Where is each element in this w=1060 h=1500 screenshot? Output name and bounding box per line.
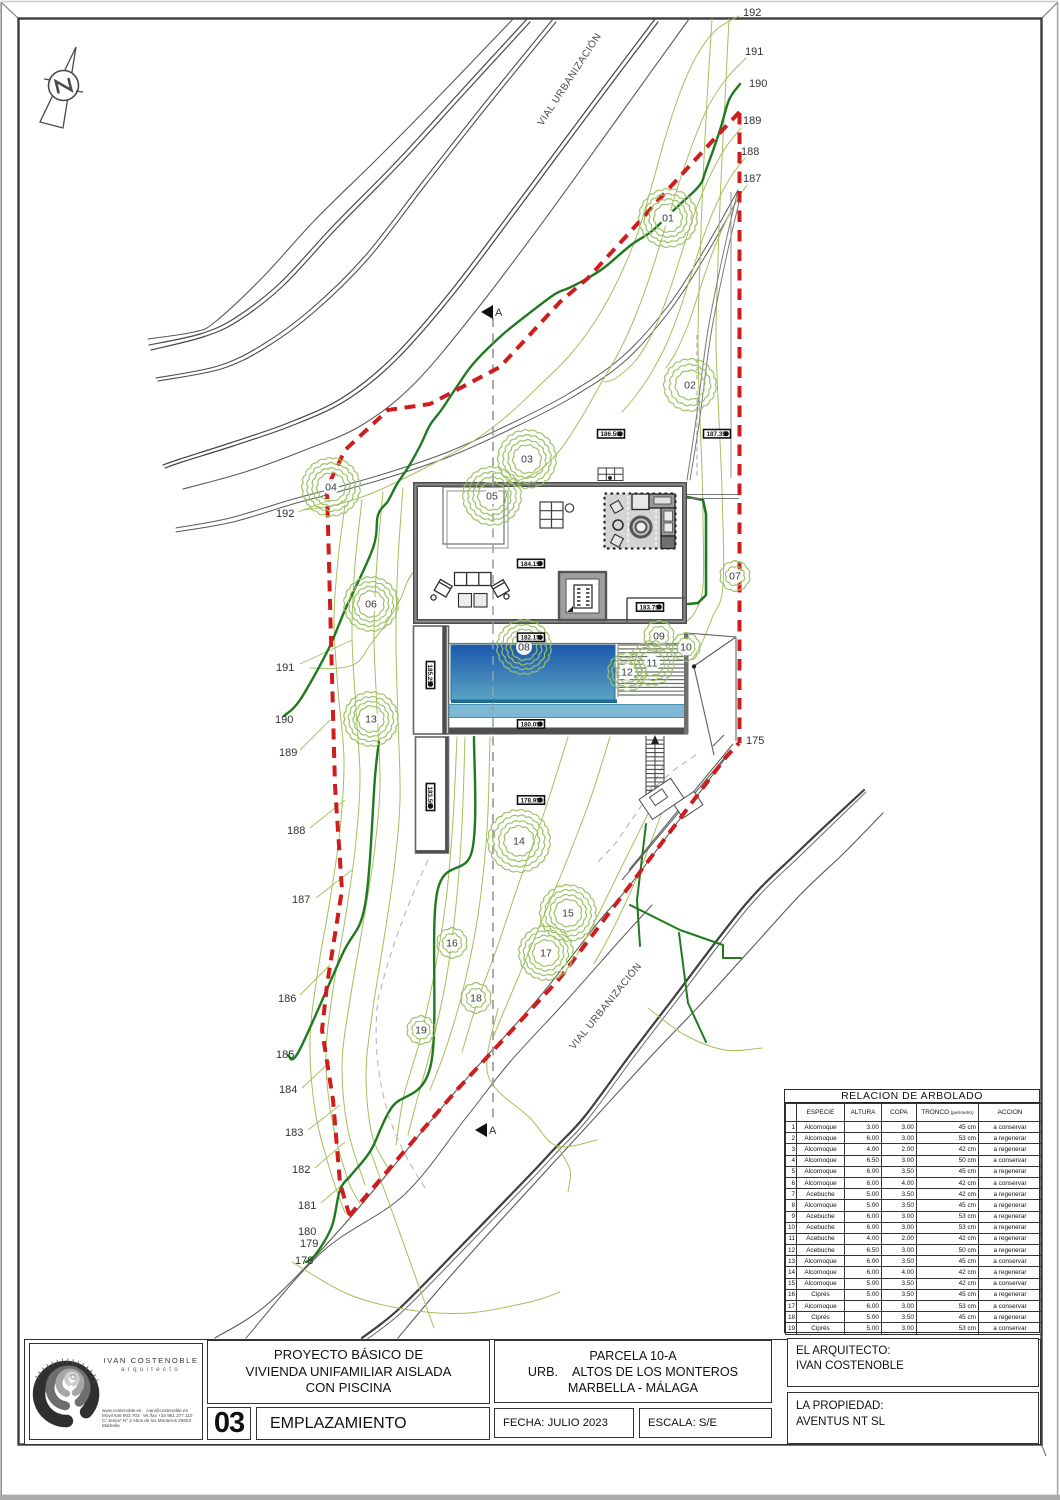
svg-text:191: 191 — [745, 46, 763, 58]
svg-text:13: 13 — [365, 714, 377, 726]
svg-text:05: 05 — [486, 491, 498, 503]
svg-text:192: 192 — [276, 508, 294, 520]
svg-text:15: 15 — [562, 908, 574, 920]
svg-text:08: 08 — [518, 642, 530, 654]
svg-text:14: 14 — [513, 836, 525, 848]
svg-text:178: 178 — [295, 1255, 313, 1267]
svg-text:19: 19 — [415, 1025, 427, 1037]
svg-text:02: 02 — [684, 380, 696, 392]
svg-text:18: 18 — [470, 993, 482, 1005]
svg-text:180: 180 — [298, 1226, 316, 1238]
svg-text:190: 190 — [275, 714, 293, 726]
svg-text:190: 190 — [749, 78, 767, 90]
svg-text:12: 12 — [621, 667, 633, 679]
svg-text:192: 192 — [743, 7, 761, 19]
svg-text:186.50: 186.50 — [601, 431, 621, 438]
svg-text:01: 01 — [662, 213, 674, 225]
svg-text:188: 188 — [287, 825, 305, 837]
svg-text:185.25: 185.25 — [426, 665, 433, 685]
svg-text:10: 10 — [680, 642, 692, 654]
svg-text:189: 189 — [743, 115, 761, 127]
svg-text:175: 175 — [746, 735, 764, 747]
svg-text:183: 183 — [285, 1127, 303, 1139]
svg-text:183.50: 183.50 — [426, 787, 433, 807]
svg-text:16: 16 — [446, 938, 458, 950]
svg-text:191: 191 — [276, 662, 294, 674]
svg-text:182.15: 182.15 — [521, 635, 541, 642]
svg-text:188: 188 — [741, 146, 759, 158]
svg-text:187: 187 — [292, 894, 310, 906]
svg-text:187: 187 — [743, 173, 761, 185]
svg-text:A: A — [489, 1125, 497, 1137]
svg-text:11: 11 — [647, 658, 658, 670]
svg-text:179: 179 — [300, 1238, 318, 1250]
svg-text:07: 07 — [729, 571, 741, 583]
svg-text:186: 186 — [278, 993, 296, 1005]
svg-text:182: 182 — [292, 1164, 310, 1176]
svg-text:181: 181 — [298, 1200, 316, 1212]
svg-text:185: 185 — [276, 1049, 294, 1061]
svg-text:184: 184 — [279, 1084, 297, 1096]
svg-text:183.75: 183.75 — [640, 604, 660, 611]
svg-text:189: 189 — [279, 747, 297, 759]
svg-text:184.15: 184.15 — [521, 561, 541, 568]
svg-text:06: 06 — [365, 599, 377, 611]
svg-text:187.35: 187.35 — [707, 431, 727, 438]
svg-text:180.05: 180.05 — [521, 721, 541, 728]
svg-text:04: 04 — [325, 482, 337, 494]
svg-text:A: A — [495, 307, 503, 319]
svg-text:03: 03 — [521, 454, 533, 466]
svg-text:178.95: 178.95 — [521, 797, 541, 804]
svg-text:17: 17 — [540, 948, 552, 960]
